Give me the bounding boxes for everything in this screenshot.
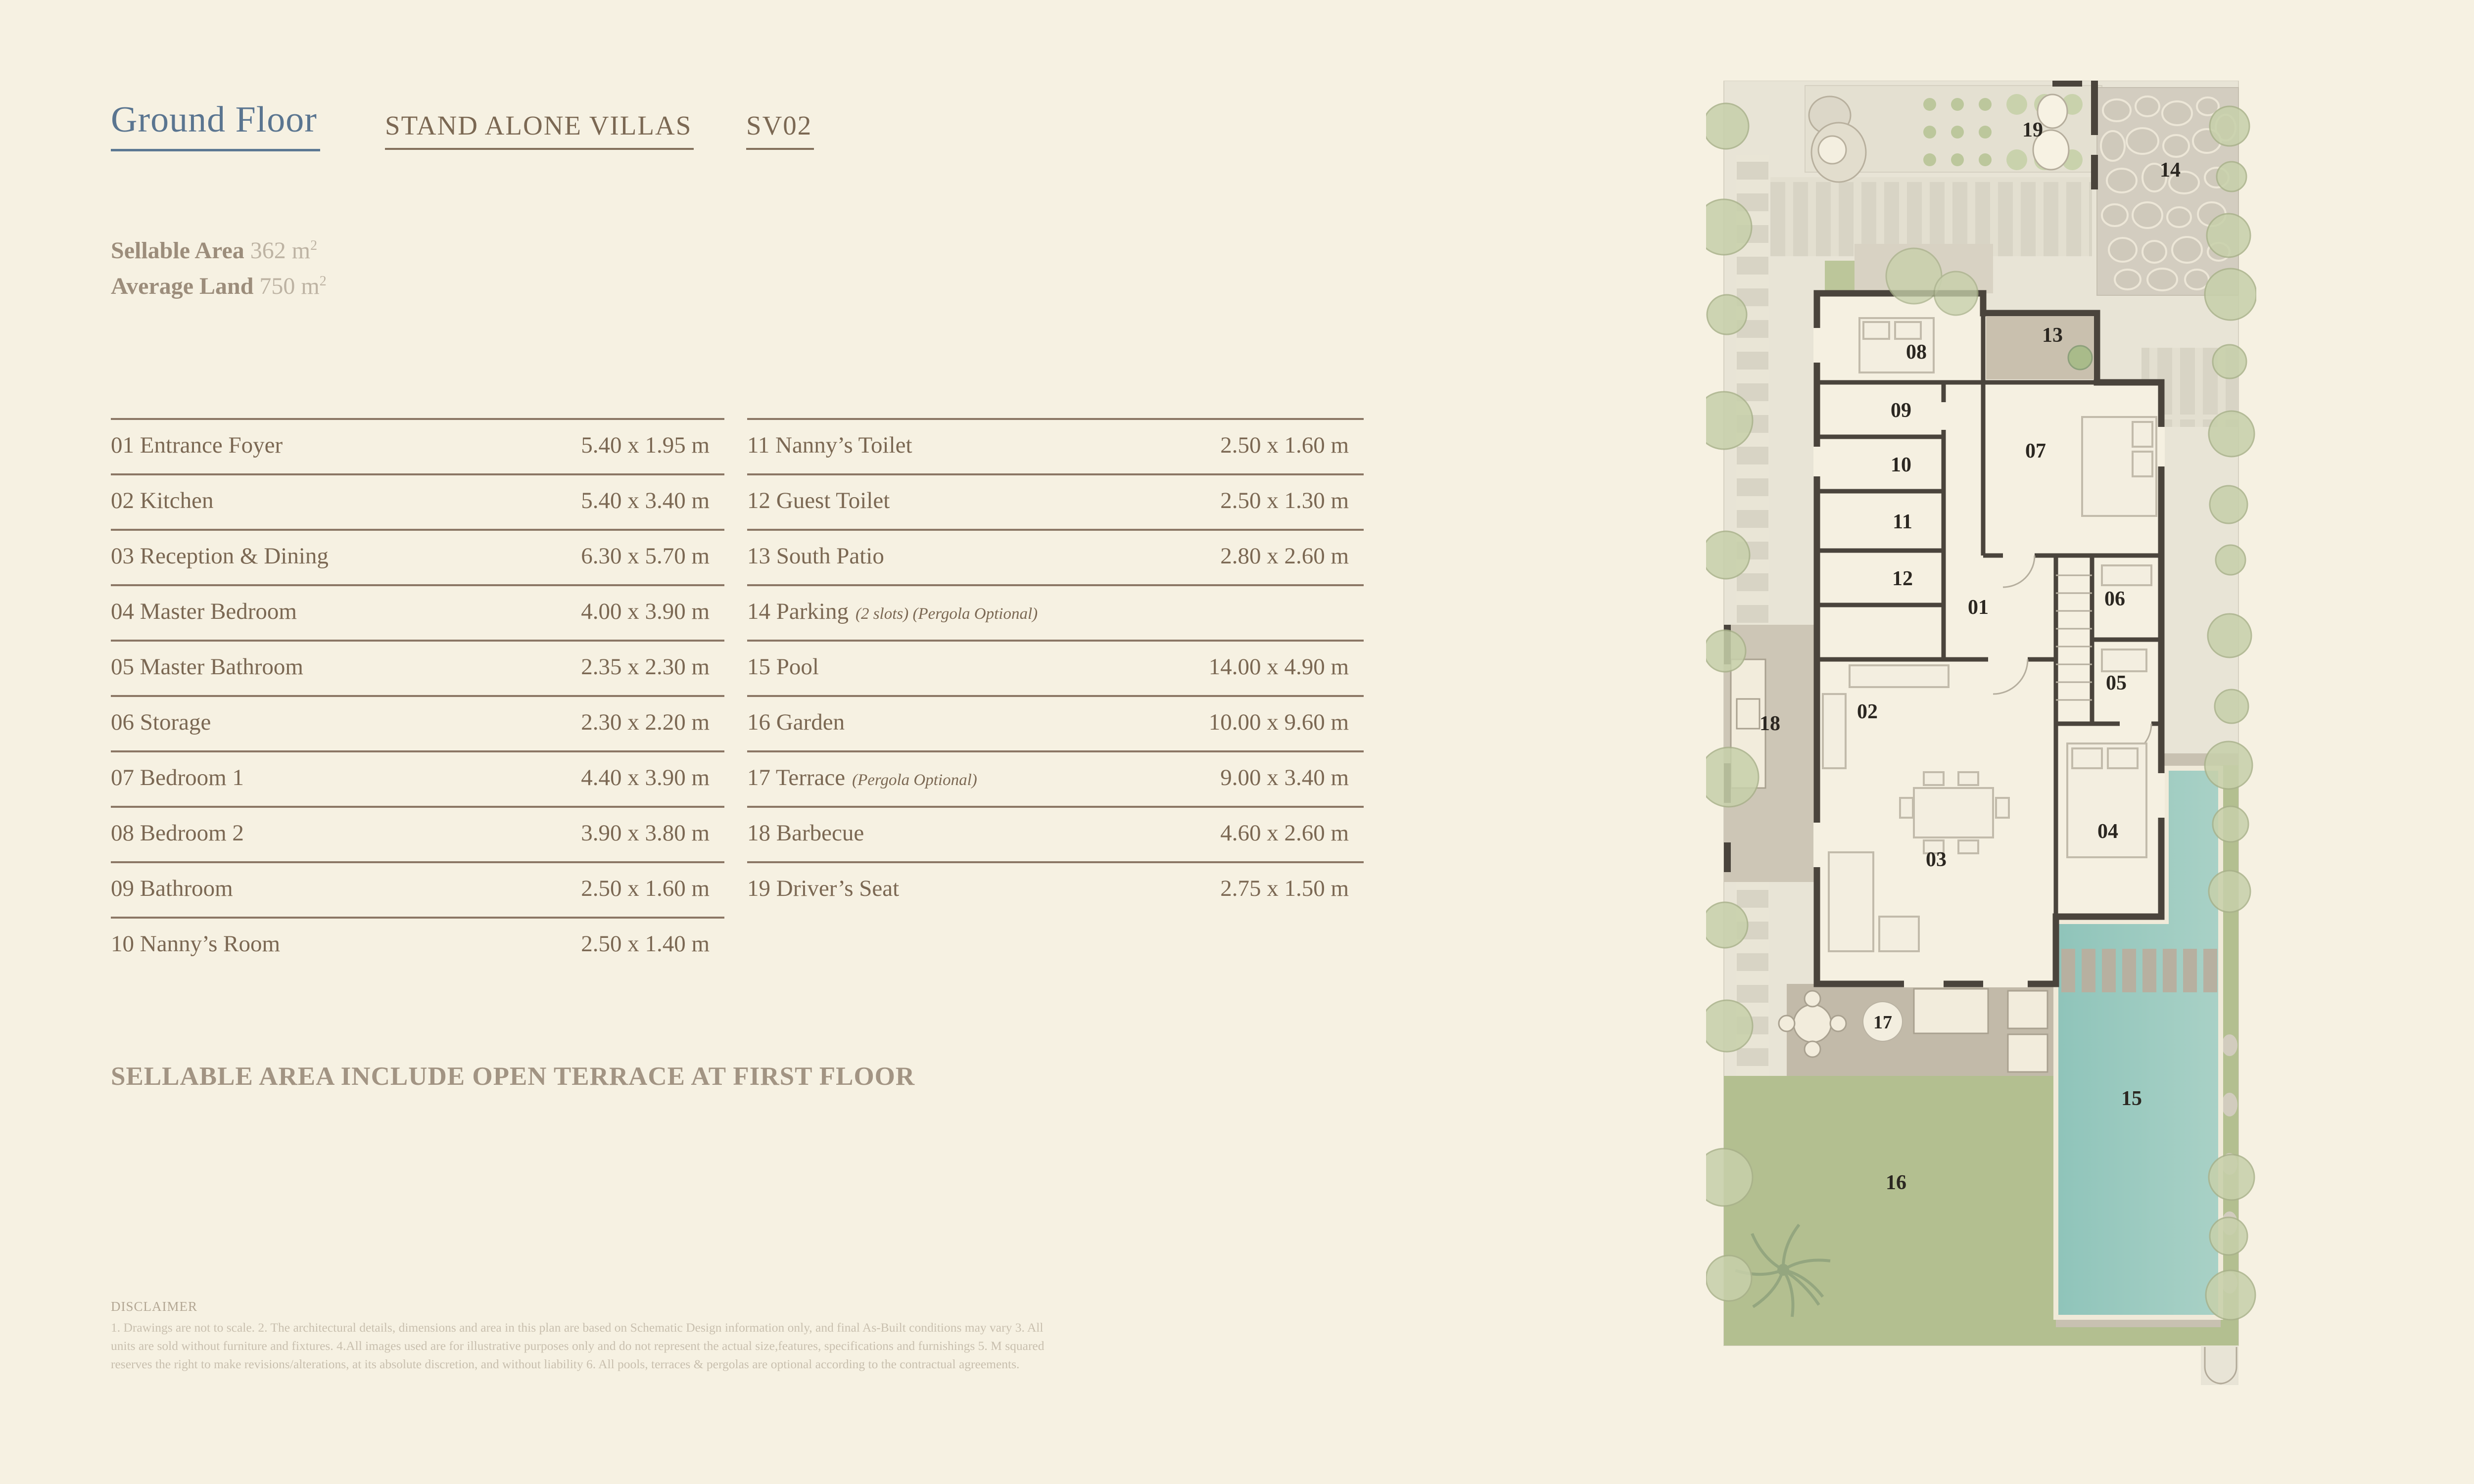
room-dims: 3.90 x 3.80 m [581, 820, 724, 846]
table-row: 15 Pool14.00 x 4.90 m [747, 640, 1364, 695]
room-dims: 6.30 x 5.70 m [581, 543, 724, 569]
south-patio [1986, 316, 2094, 379]
table-row: 14 Parking(2 slots) (Pergola Optional) [747, 584, 1364, 640]
average-land-stat: Average Land 750 m2 [111, 266, 327, 302]
room-label-09: 09 [1891, 399, 1911, 422]
room-dims: 2.50 x 1.60 m [1220, 432, 1364, 459]
area-stats: Sellable Area 362 m2 Average Land 750 m2 [111, 231, 327, 302]
room-label-17: 17 [1873, 1012, 1892, 1033]
average-land-value: 750 m2 [259, 273, 326, 299]
table-row: 13 South Patio2.80 x 2.60 m [747, 529, 1364, 584]
room-dims: 2.30 x 2.20 m [581, 709, 724, 736]
table-row: 19 Driver’s Seat2.75 x 1.50 m [747, 861, 1364, 917]
table-row: 18 Barbecue4.60 x 2.60 m [747, 806, 1364, 861]
tab-ground-floor[interactable]: Ground Floor [111, 99, 320, 151]
average-land-label: Average Land [111, 273, 253, 299]
sellable-area-label: Sellable Area [111, 237, 244, 264]
disclaimer-title: DISCLAIMER [111, 1299, 1056, 1314]
disclaimer-body: 1. Drawings are not to scale. 2. The arc… [111, 1318, 1056, 1374]
room-label: 09 Bathroom [111, 875, 233, 902]
room-label-04: 04 [2097, 820, 2118, 843]
room-label: 11 Nanny’s Toilet [747, 432, 912, 459]
rooms-table-left: 01 Entrance Foyer5.40 x 1.95 m 02 Kitche… [111, 418, 724, 972]
room-label-16: 16 [1886, 1171, 1906, 1194]
room-label: 02 Kitchen [111, 487, 214, 514]
room-label-14: 14 [2160, 159, 2181, 182]
room-label: 19 Driver’s Seat [747, 875, 899, 902]
room-dims: 5.40 x 3.40 m [581, 487, 724, 514]
room-label: 17 Terrace [747, 764, 845, 791]
room-label-12: 12 [1892, 567, 1913, 590]
room-dims: 4.60 x 2.60 m [1220, 820, 1364, 846]
table-row: 06 Storage2.30 x 2.20 m [111, 695, 724, 750]
room-label: 15 Pool [747, 653, 819, 680]
table-row: 11 Nanny’s Toilet2.50 x 1.60 m [747, 418, 1364, 473]
room-label: 12 Guest Toilet [747, 487, 890, 514]
room-label: 08 Bedroom 2 [111, 820, 244, 846]
side-walkway [2201, 1345, 2238, 1385]
room-label-11: 11 [1893, 510, 1912, 533]
room-dims: 2.50 x 1.40 m [581, 930, 724, 957]
room-dims: 4.00 x 3.90 m [581, 598, 724, 625]
room-label-10: 10 [1891, 454, 1911, 476]
table-row: 12 Guest Toilet2.50 x 1.30 m [747, 473, 1364, 529]
room-dims: 2.50 x 1.60 m [581, 875, 724, 902]
room-label-15: 15 [2121, 1087, 2142, 1110]
table-row: 09 Bathroom2.50 x 1.60 m [111, 861, 724, 917]
sellable-area-note: SELLABLE AREA INCLUDE OPEN TERRACE AT FI… [111, 1062, 915, 1091]
room-dims: 10.00 x 9.60 m [1209, 709, 1364, 736]
disclaimer: DISCLAIMER 1. Drawings are not to scale.… [111, 1299, 1056, 1374]
room-label-07: 07 [2025, 440, 2046, 463]
table-row: 01 Entrance Foyer5.40 x 1.95 m [111, 418, 724, 473]
table-row: 04 Master Bedroom4.00 x 3.90 m [111, 584, 724, 640]
table-row: 08 Bedroom 23.90 x 3.80 m [111, 806, 724, 861]
floor-plan-illustration: 01 02 03 04 05 06 07 08 09 10 11 12 13 1… [1706, 81, 2256, 1401]
room-label-05: 05 [2106, 672, 2127, 695]
villa-type-link[interactable]: STAND ALONE VILLAS [385, 110, 694, 150]
table-row: 03 Reception & Dining6.30 x 5.70 m [111, 529, 724, 584]
room-label-13: 13 [2042, 324, 2063, 347]
room-label: 07 Bedroom 1 [111, 764, 244, 791]
table-row: 02 Kitchen5.40 x 3.40 m [111, 473, 724, 529]
room-dims: 14.00 x 4.90 m [1209, 653, 1364, 680]
room-label: 05 Master Bathroom [111, 653, 303, 680]
room-label-03: 03 [1926, 848, 1947, 871]
rooms-table-right: 11 Nanny’s Toilet2.50 x 1.60 m 12 Guest … [747, 418, 1364, 917]
room-label-06: 06 [2104, 588, 2125, 610]
sellable-area-value: 362 m2 [250, 237, 317, 264]
room-label: 04 Master Bedroom [111, 598, 297, 625]
room-label: 18 Barbecue [747, 820, 864, 846]
table-row: 05 Master Bathroom2.35 x 2.30 m [111, 640, 724, 695]
room-label: 03 Reception & Dining [111, 543, 329, 569]
room-label: 13 South Patio [747, 543, 884, 569]
room-label-02: 02 [1857, 700, 1878, 723]
room-dims: 2.50 x 1.30 m [1220, 487, 1364, 514]
room-label-08: 08 [1906, 341, 1927, 364]
room-label: 01 Entrance Foyer [111, 432, 283, 459]
room-label: 10 Nanny’s Room [111, 930, 280, 957]
room-label: 16 Garden [747, 709, 845, 736]
room-label: 14 Parking [747, 598, 849, 625]
room-dims: 4.40 x 3.90 m [581, 764, 724, 791]
room-dims: 2.80 x 2.60 m [1220, 543, 1364, 569]
room-label-18: 18 [1760, 712, 1780, 735]
room-label: 06 Storage [111, 709, 211, 736]
room-label-01: 01 [1968, 596, 1989, 619]
table-row: 16 Garden10.00 x 9.60 m [747, 695, 1364, 750]
brochure-page: { "header": { "floor_label": "Ground Flo… [0, 0, 2474, 1484]
room-dims: 9.00 x 3.40 m [1220, 764, 1364, 791]
sellable-area-stat: Sellable Area 362 m2 [111, 231, 327, 266]
table-row: 10 Nanny’s Room2.50 x 1.40 m [111, 917, 724, 972]
unit-code-link[interactable]: SV02 [746, 110, 814, 150]
room-dims: 2.75 x 1.50 m [1220, 875, 1364, 902]
room-dims: 5.40 x 1.95 m [581, 432, 724, 459]
room-label-19: 19 [2022, 119, 2043, 141]
table-row: 17 Terrace(Pergola Optional)9.00 x 3.40 … [747, 750, 1364, 806]
table-row: 07 Bedroom 14.40 x 3.90 m [111, 750, 724, 806]
room-dims: 2.35 x 2.30 m [581, 653, 724, 680]
